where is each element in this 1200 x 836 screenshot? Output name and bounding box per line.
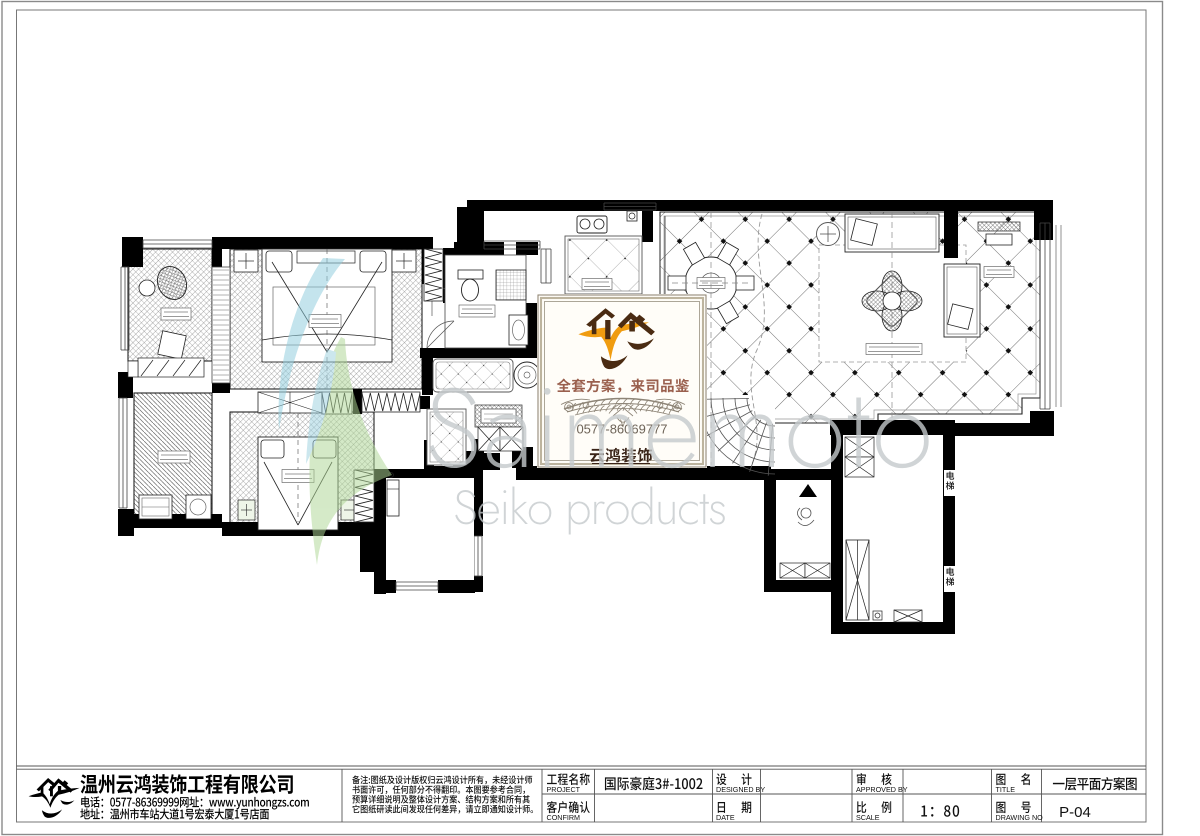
svg-text:DESIGNED BY: DESIGNED BY <box>716 785 765 794</box>
svg-text:CONFIRM: CONFIRM <box>547 813 581 822</box>
svg-text:P-04: P-04 <box>1059 804 1091 821</box>
svg-text:PROJECT: PROJECT <box>547 785 581 794</box>
svg-text:TITLE: TITLE <box>996 785 1016 794</box>
svg-text:DRAWING NO: DRAWING NO <box>996 813 1044 822</box>
svg-text:SCALE: SCALE <box>856 813 880 822</box>
svg-text:APPROVED BY: APPROVED BY <box>856 785 908 794</box>
svg-text:DATE: DATE <box>716 813 735 822</box>
